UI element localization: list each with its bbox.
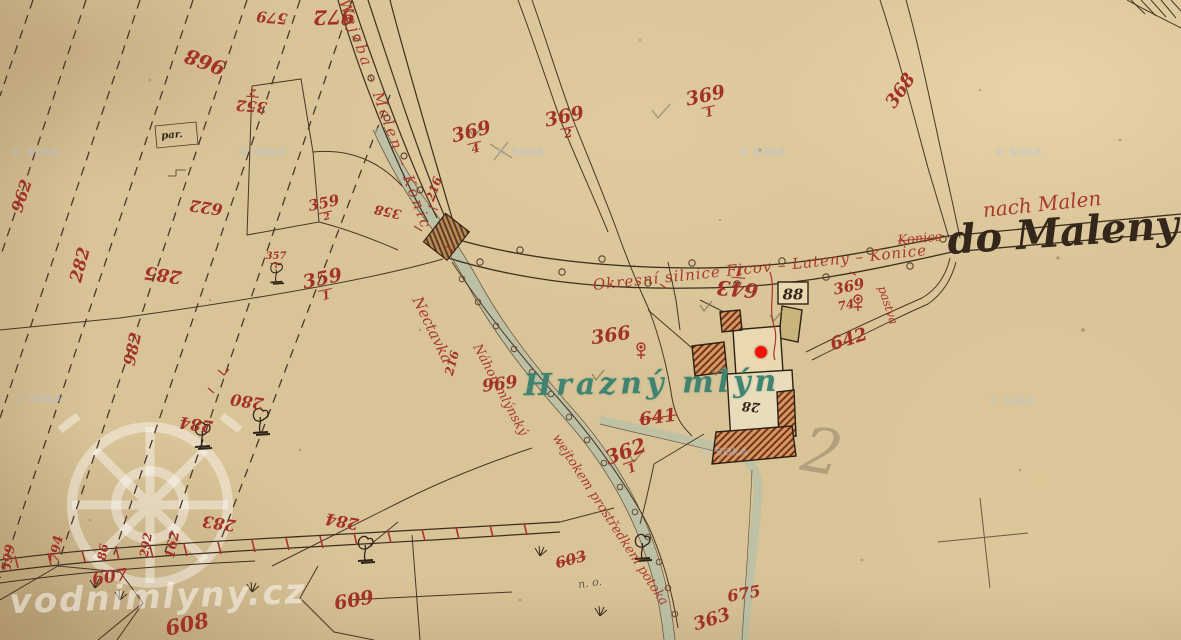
map-label-88: 88 [783,288,804,303]
map-label-74: 74 [837,298,856,313]
map-label-358: 358 [373,202,402,220]
map-label-607: 607 [91,567,129,589]
location-marker-dot[interactable] [755,346,767,358]
map-label-162: 162 [164,530,182,559]
map-label-369-2: 3692 [543,104,589,144]
map-label-216b: 216 [443,349,461,376]
map-label-969: 969 [481,374,519,396]
map-label-wm5: © SOkA [994,147,1042,158]
map-label-609: 609 [333,588,375,614]
map-label-wm3: © SOkA [496,147,544,158]
map-label-363: 363 [691,606,732,635]
map-label-283: 283 [201,513,236,533]
map-label-599: 599 [0,544,18,573]
map-label-362-1: 3621 [603,435,654,482]
map-label-road2: Okresní silnice Ficov – Lateny – Konice [592,243,928,293]
map-canvas[interactable]: 5799729683522962282285982622359235713591… [0,0,1181,640]
map-label-968: 968 [182,45,228,78]
map-labels-layer: 5799729683522962282285982622359235713591… [0,0,1181,640]
map-label-stream1: Nectavka [410,294,455,365]
map-label-wm1: © SOkA [11,147,59,158]
map-label-par: par. [161,130,183,142]
map-label-641: 641 [638,406,678,429]
map-label-wm2: © SOkA [238,147,286,158]
map-label-982: 982 [122,331,145,367]
map-label-wm4: © SOkA [738,147,786,158]
map-label-285: 285 [143,262,183,285]
map-label-368: 368 [883,70,919,111]
map-label-pastva: pastva [876,284,900,326]
map-label-nach-malen: nach Malen [982,188,1102,220]
map-label-284b: 284 [324,510,360,532]
map-label-wm8: © SOkA [700,447,748,458]
map-label-292: 292 [138,532,154,559]
map-label-216a: 216 [424,175,444,203]
map-label-no: n. o. [577,576,602,590]
map-label-366: 366 [590,324,632,348]
map-label-642: 642 [828,326,869,355]
map-label-konice: Konice [897,231,943,248]
map-label-972: 972 [313,6,355,27]
map-label-675: 675 [726,583,762,605]
map-label-284a: 284 [178,414,213,434]
map-label-608: 608 [163,609,210,639]
map-label-wm7: © SOkA [988,396,1036,407]
map-label-stream3: wejtokem prostředkem potoka [550,432,671,608]
map-label-369-4: 3694 [450,118,496,159]
map-label-579: 579 [256,8,289,26]
map-label-stream2: Náhon mlýnský [470,342,529,438]
map-label-359-2: 3592 [307,193,343,225]
map-label-369-1: 3691 [684,83,730,123]
map-label-hrazny-mlyn: Hrazný mlýn [523,367,780,401]
map-label-369b: 369 [832,276,866,297]
map-label-643-1: 6431 [716,263,761,301]
map-label-do-maleny: do Maleny [946,205,1180,261]
map-label-352-2: 3522 [235,86,268,115]
map-label-28: 28 [741,399,760,414]
map-label-794: 794 [48,535,66,564]
map-label-road1: Wejzba – Malen – Konic [336,0,434,232]
map-label-962: 962 [9,178,35,215]
map-label-pencil-2: 2 [797,418,847,486]
map-label-wm6: © SOkA [14,394,62,405]
map-label-282: 282 [68,246,94,285]
map-label-357-1: 3571 [266,252,287,270]
map-label-site: vodnimlyny.cz [9,575,307,619]
map-label-86: 86 [96,543,111,562]
map-label-280: 280 [229,391,264,411]
map-label-603: 603 [554,549,588,572]
map-label-622: 622 [188,197,223,217]
map-label-359-1: 3591 [301,266,347,306]
